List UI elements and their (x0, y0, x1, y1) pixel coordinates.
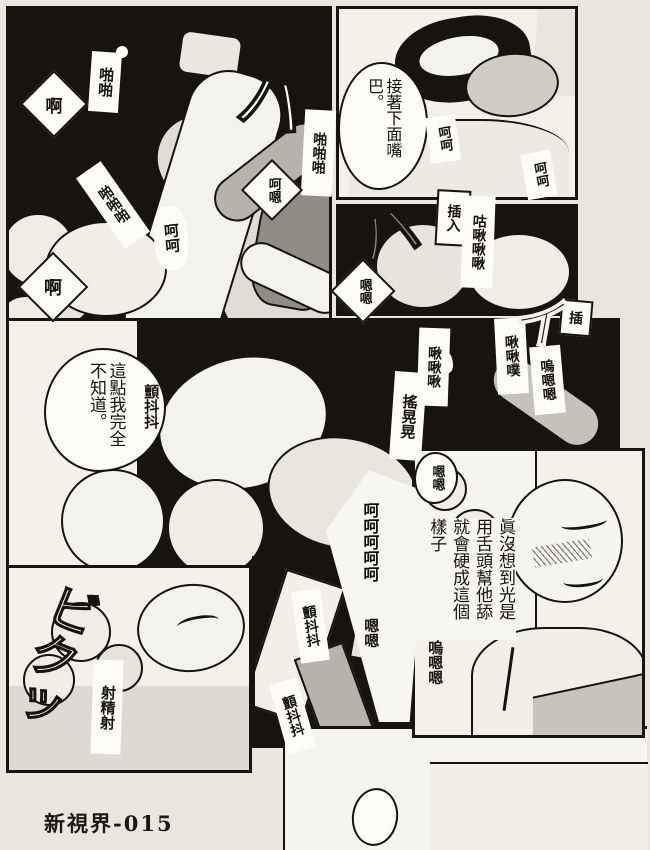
label-text: 射精射 (98, 684, 117, 730)
sfx-strip: 啪啪啪 (301, 109, 336, 197)
moan-text: 呵呵 (161, 222, 181, 253)
moan-text: 嗯嗯 (356, 278, 371, 304)
sfx-text: 啪啪 (95, 66, 114, 97)
sfx-strip: 射精射 (90, 660, 123, 755)
manga-page: 啊 啪啪 パ 啪啪啪 啪啪啪 呵呵 呵嗯 啊 接著下面嘴巴。 呵呵 呵呵 ハ 插… (0, 0, 650, 850)
sfx-strip: 啪啪 (88, 51, 122, 113)
moan-text: 嗯嗯 (362, 618, 379, 648)
moan-text: 呵呵 (529, 161, 548, 189)
sfx-strip: 搖晃晃 (389, 371, 427, 461)
sfx-text: 啪啪啪 (309, 132, 327, 175)
label-text: 插入 (444, 204, 462, 233)
sfx-text: 搖晃晃 (398, 393, 418, 439)
dialogue-text: 接著下面嘴巴。 (365, 78, 402, 174)
dialogue-text: 這點我完全不知道。 (85, 362, 124, 458)
dialogue-text: 眞沒想到光是用舌頭幫他舔就會硬成這個樣子 (424, 518, 516, 622)
moan-text: 呵呵 (434, 125, 452, 153)
moan-text: 嗚嗯嗯 (426, 640, 443, 685)
moan-text: 嗯嗯 (429, 465, 444, 491)
sfx-text: 啾啾啾 (425, 346, 443, 389)
dialogue-block: 眞沒想到光是用舌頭幫他舔就會硬成這個樣子 (418, 518, 516, 640)
moan-text: 啊 (44, 274, 62, 300)
moan-box: 呵呵 (425, 114, 461, 164)
sfx-text: 顫抖抖 (300, 604, 322, 648)
body-shape (61, 469, 165, 568)
moan-text-wrap: 呵嗯 (265, 177, 280, 203)
moan-text: 呵呵呵呵呵 (360, 502, 378, 582)
body-shape (167, 479, 265, 568)
sfx-text: 顫抖抖 (279, 694, 306, 739)
sfx-text: 顫抖抖 (142, 384, 159, 429)
moan-text: 呵嗯 (265, 177, 280, 203)
moan-text-wrap: 嗯嗯 (356, 278, 371, 304)
moan-text: 嗚嗯嗯 (538, 358, 558, 401)
page-footer: 新視界-015 (44, 808, 174, 838)
moan-text: 啊 (46, 92, 63, 117)
sfx-text: 咕啾啾啾 (469, 214, 487, 271)
curtain-back (430, 762, 648, 850)
sfx-strip: 咕啾啾啾 (460, 195, 495, 288)
